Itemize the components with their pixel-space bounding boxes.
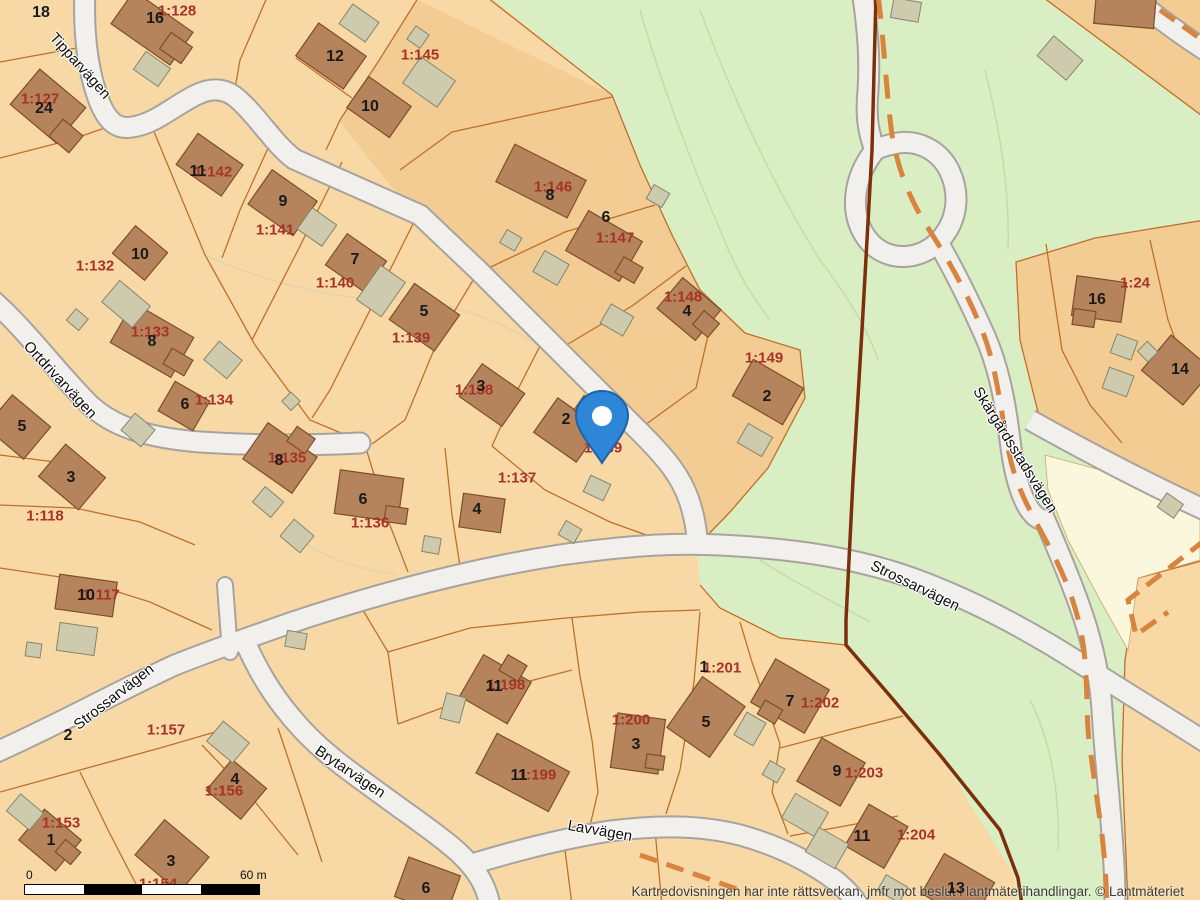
house-number: 1 [47, 833, 56, 849]
house-number: 8 [546, 188, 555, 204]
house-number: 3 [67, 470, 76, 486]
house-number: 10 [131, 247, 149, 263]
house-number: 8 [148, 334, 157, 350]
house-number: 2 [64, 728, 73, 744]
house-number: 16 [146, 11, 164, 27]
parcel-label: 1:141 [256, 223, 294, 238]
house-number: 3 [167, 854, 176, 870]
parcel-label: 1:149 [745, 351, 783, 366]
house-number: 7 [351, 252, 360, 268]
location-pin-marker[interactable] [574, 389, 631, 466]
parcel-label: 1:118 [26, 509, 64, 524]
building [459, 493, 505, 533]
house-number: 2 [562, 412, 571, 428]
parcel-label: 1:204 [897, 828, 935, 843]
house-number: 4 [231, 772, 240, 788]
attribution-text: Kartredovisningen har inte rättsverkan, … [632, 884, 1184, 899]
house-number: 11 [486, 679, 503, 695]
parcel-label: 1:24 [1120, 276, 1150, 291]
scale-end-label: 60 m [240, 868, 267, 882]
building [1094, 0, 1157, 29]
parcel-label: 1:157 [147, 723, 185, 738]
house-number: 6 [359, 492, 368, 508]
house-number: 10 [361, 99, 379, 115]
parcel-label: 1:136 [351, 516, 389, 531]
house-number: 8 [275, 453, 284, 469]
house-number: 2 [763, 389, 772, 405]
house-number: 11 [854, 829, 871, 845]
house-number: 7 [786, 694, 795, 710]
parcel-label: 1:147 [596, 231, 634, 246]
parcel-label: 1:132 [76, 259, 114, 274]
parcel-label: 1:203 [845, 766, 883, 781]
house-number: 24 [35, 101, 53, 117]
scale-start-label: 0 [26, 868, 33, 882]
house-number: 10 [77, 588, 95, 604]
house-number: 18 [32, 5, 50, 21]
scale-bar: 0 60 m [24, 868, 284, 898]
outbuilding [56, 622, 98, 655]
pin-icon [574, 389, 631, 466]
house-number: 16 [1088, 292, 1106, 308]
outbuilding [25, 642, 42, 658]
parcel-label: 1:138 [455, 383, 493, 398]
map-view[interactable]: 1:1281:1451:1271:1421:1461:1411:1321:147… [0, 0, 1200, 900]
house-number: 3 [632, 737, 641, 753]
parcel-label: 1:153 [42, 816, 80, 831]
house-number: 11 [190, 164, 207, 180]
parcel-label: 1:137 [498, 471, 536, 486]
house-number: 6 [602, 210, 611, 226]
house-number: 13 [947, 881, 965, 897]
house-number: 14 [1171, 362, 1189, 378]
house-number: 6 [181, 397, 190, 413]
parcel-label: 1:145 [401, 48, 439, 63]
house-number: 1 [700, 660, 709, 676]
parcel-label: 1:202 [801, 696, 839, 711]
parcel-label: 1:201 [703, 661, 741, 676]
parcel-label: 1:200 [612, 713, 650, 728]
scale-bar-segments [24, 884, 260, 895]
house-number: 4 [683, 304, 692, 320]
house-number: 4 [473, 502, 482, 518]
house-number: 3 [477, 379, 486, 395]
house-number: 9 [279, 194, 288, 210]
parcel-label: 1:139 [392, 331, 430, 346]
house-number: 5 [420, 304, 429, 320]
house-number: 5 [18, 419, 27, 435]
house-number: 11 [511, 768, 528, 784]
parcel-label: 1:134 [195, 393, 233, 408]
parcel-label: 1:140 [316, 276, 354, 291]
house-number: 5 [702, 715, 711, 731]
building [1072, 309, 1096, 328]
outbuilding [285, 630, 307, 649]
house-number: 12 [326, 49, 344, 65]
house-number: 9 [833, 764, 842, 780]
building [645, 754, 665, 770]
house-number: 6 [422, 881, 431, 897]
outbuilding [422, 536, 442, 555]
